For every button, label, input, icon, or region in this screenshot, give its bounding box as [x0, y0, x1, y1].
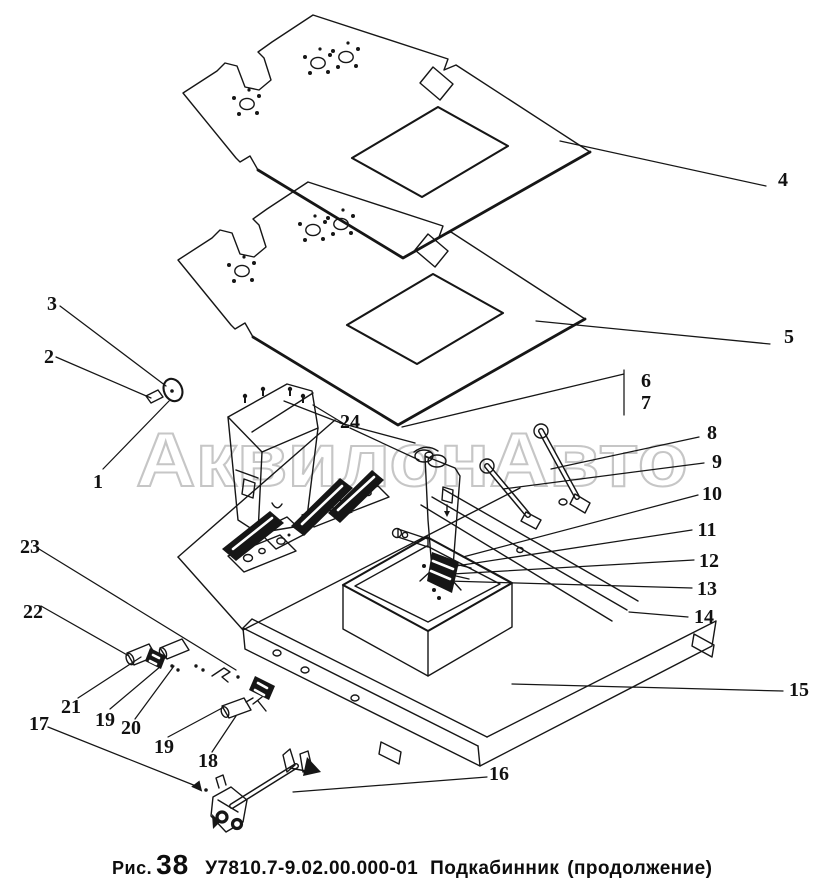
- control-lever: [204, 749, 321, 832]
- callout-6-label: 6: [641, 370, 651, 392]
- callout-18-label: 18: [198, 750, 218, 772]
- callout-24-label: 24: [340, 411, 360, 433]
- callout-21-label: 21: [61, 696, 81, 718]
- diagram-svg: АквилонАвто: [0, 0, 823, 895]
- callout-10-label: 10: [702, 483, 722, 505]
- callout-1-label: 1: [93, 471, 103, 493]
- callout-16-label: 16: [489, 763, 509, 785]
- callout-2-label: 2: [44, 346, 54, 368]
- callout-5-label: 5: [784, 326, 794, 348]
- callout-17-label: 17: [29, 713, 49, 735]
- caption-fig-number: 38: [156, 849, 189, 881]
- watermark-text: АквилонАвто: [136, 418, 688, 503]
- floor-panel-top: [183, 15, 590, 258]
- callout-7-label: 7: [641, 392, 651, 414]
- callout-20-label: 20: [121, 717, 141, 739]
- figure-caption: Рис. 38 У7810.7-9.02.00.000-01 Подкабинн…: [112, 849, 712, 881]
- callout-14-label: 14: [694, 606, 714, 628]
- caption-fig-label: Рис.: [112, 858, 152, 879]
- callout-3-label: 3: [47, 293, 57, 315]
- hardware-pins: [125, 639, 275, 718]
- caption-part-name: Подкабинник: [430, 858, 559, 880]
- callout-22-label: 22: [23, 601, 43, 623]
- callout-8-label: 8: [707, 422, 717, 444]
- callout-19a-label: 19: [95, 709, 115, 731]
- floor-panel-middle: [178, 182, 585, 425]
- washer-part: [146, 376, 186, 404]
- callout-9-label: 9: [712, 451, 722, 473]
- callout-12-label: 12: [699, 550, 719, 572]
- base-platform: [243, 488, 716, 766]
- callout-11-label: 11: [698, 519, 717, 541]
- caption-note: (продолжение): [567, 858, 712, 880]
- callout-13-label: 13: [697, 578, 717, 600]
- caption-part-code: У7810.7-9.02.00.000-01: [205, 858, 418, 880]
- callout-23-label: 23: [20, 536, 40, 558]
- callout-19b-label: 19: [154, 736, 174, 758]
- figure-canvas: АквилонАвто: [0, 0, 823, 895]
- callout-4-label: 4: [778, 169, 788, 191]
- tray-box: [343, 537, 512, 676]
- callout-15-label: 15: [789, 679, 809, 701]
